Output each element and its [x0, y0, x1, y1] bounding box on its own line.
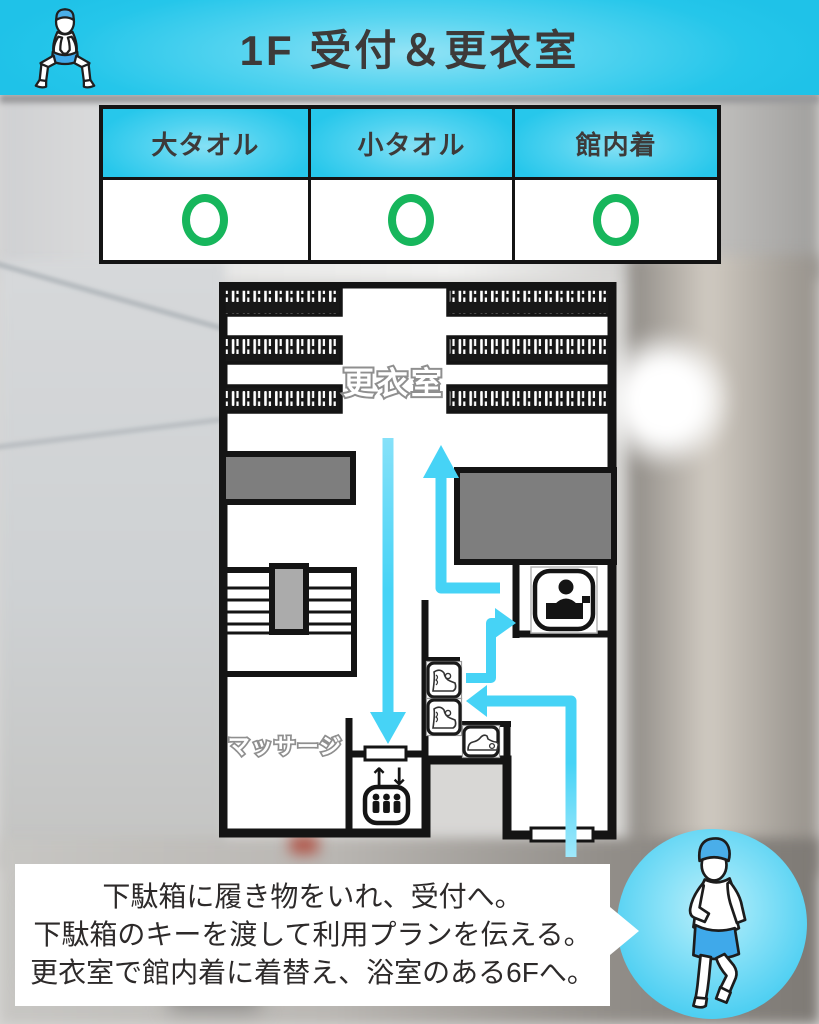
bench-counter [223, 454, 353, 502]
reception-desk-icon [531, 567, 597, 633]
bg-horizontal-edge [0, 94, 819, 103]
column-header-large-towel: 大タオル [103, 109, 308, 180]
page-title: 1F 受付＆更衣室 [240, 17, 580, 78]
header-banner: 1F 受付＆更衣室 [0, 0, 819, 95]
badge-circle [617, 829, 807, 1019]
infographic-canvas: 1F 受付＆更衣室 大タオル 小タオル 館内着 [0, 0, 819, 1024]
table-cell [308, 180, 513, 260]
table-cell [103, 180, 308, 260]
available-mark [182, 194, 228, 246]
massage-room-label: マッサージ [228, 734, 343, 759]
entrance-door [531, 828, 593, 841]
table-cell [512, 180, 717, 260]
speech-bubble-pointer [610, 907, 639, 955]
column-header-small-towel: 小タオル [308, 109, 513, 180]
instruction-box: 下駄箱に履き物をいれ、受付へ。 下駄箱のキーを渡して利用プランを伝える。 更衣室… [15, 864, 610, 1006]
walking-sauna-person-icon [649, 836, 775, 1012]
changing-room-label: 更衣室 [343, 366, 445, 401]
elevator-door [365, 747, 406, 760]
locker-bank [448, 337, 610, 363]
elevator-icon: ↑↓ [365, 763, 409, 823]
sauna-squat-person-icon [32, 6, 98, 90]
locker-bank [448, 386, 610, 412]
instruction-line: 更衣室で館内着に着替え、浴室のある6Fへ。 [30, 954, 595, 992]
locker-bank [224, 337, 341, 363]
column-header-indoor-wear: 館内着 [512, 109, 717, 180]
floor-plan: 更衣室 マッサージ ↑↓ [219, 282, 617, 865]
available-mark [388, 194, 434, 246]
locker-bank [224, 386, 341, 412]
bg-white-highlight [600, 330, 730, 470]
locker-bank [448, 289, 610, 315]
instruction-line: 下駄箱に履き物をいれ、受付へ。 [102, 878, 522, 916]
locker-bank [224, 289, 341, 315]
instruction-line: 下駄箱のキーを渡して利用プランを伝える。 [33, 916, 591, 954]
stair-landing [272, 566, 306, 632]
available-mark [593, 194, 639, 246]
amenities-table: 大タオル 小タオル 館内着 [99, 105, 721, 264]
bench-counter [457, 470, 614, 562]
bg-left-buildings [0, 260, 225, 870]
